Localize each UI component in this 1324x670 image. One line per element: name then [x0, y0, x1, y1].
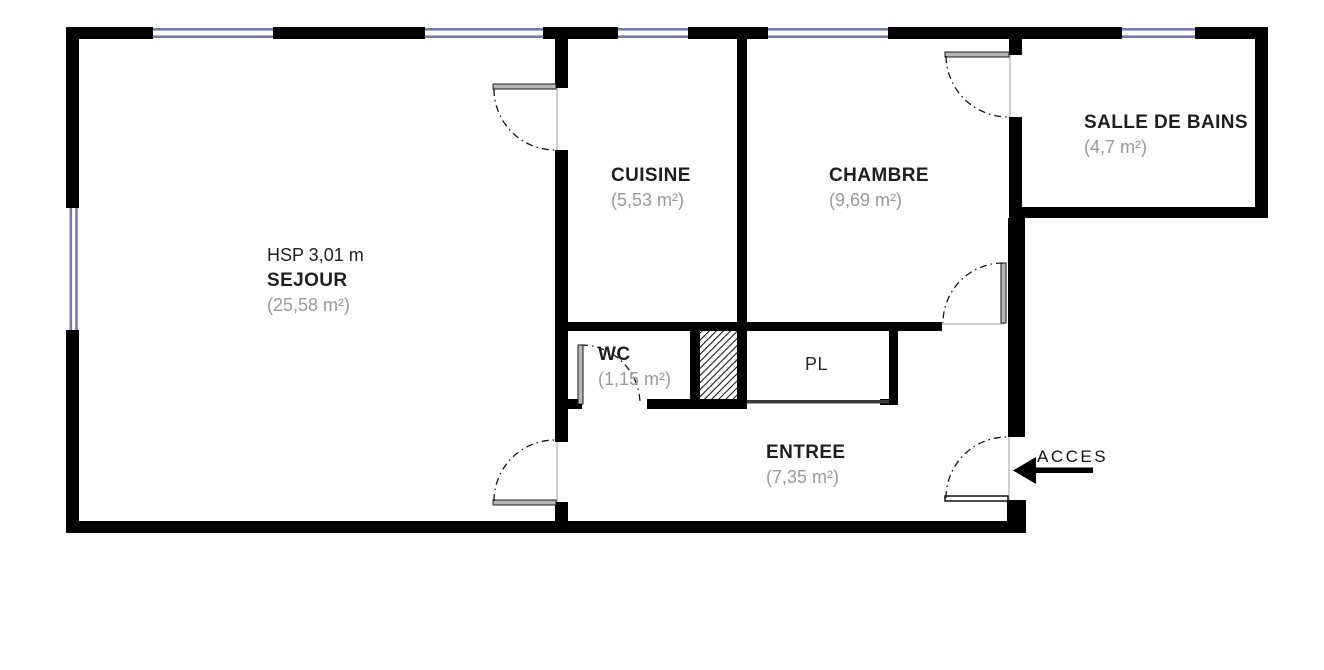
room-area: (7,35 m²) [766, 465, 845, 490]
room-area: (25,58 m²) [267, 293, 364, 318]
room-area: (4,7 m²) [1084, 135, 1248, 160]
room-name: ENTREE [766, 440, 845, 465]
window-icon [618, 27, 688, 39]
room-label-pl: PL [805, 352, 828, 377]
access-label: ACCES [1037, 444, 1108, 469]
room-label-chambre: CHAMBRE (9,69 m²) [829, 163, 929, 213]
door-entrance [945, 437, 1008, 501]
floor-plan-drawing [0, 0, 1324, 670]
window-icon [768, 27, 888, 39]
room-name: CUISINE [611, 163, 691, 188]
window-icon [1122, 27, 1195, 39]
door-chambre [943, 263, 1006, 323]
room-label-entree: ENTREE (7,35 m²) [766, 440, 845, 490]
room-area: (5,53 m²) [611, 188, 691, 213]
closet-front-line [747, 400, 889, 404]
room-area: (9,69 m²) [829, 188, 929, 213]
room-label-salle-de-bains: SALLE DE BAINS (4,7 m²) [1084, 110, 1248, 160]
room-name: SEJOUR [267, 268, 364, 293]
room-name: SALLE DE BAINS [1084, 110, 1248, 135]
room-area: (1,15 m²) [598, 367, 671, 392]
shaft-hatch [700, 331, 737, 399]
room-name: WC [598, 342, 671, 367]
window-icon [425, 27, 543, 39]
window-icon [66, 208, 79, 330]
room-label-wc: WC (1,15 m²) [598, 342, 671, 392]
door-salle-de-bains [945, 52, 1009, 117]
floor-plan: HSP 3,01 m SEJOUR (25,58 m²) CUISINE (5,… [0, 0, 1324, 670]
room-label-sejour: HSP 3,01 m SEJOUR (25,58 m²) [267, 243, 364, 318]
room-label-cuisine: CUISINE (5,53 m²) [611, 163, 691, 213]
door-thresholds [556, 55, 1011, 502]
door-cuisine [493, 84, 556, 150]
room-name: CHAMBRE [829, 163, 929, 188]
ceiling-height-note: HSP 3,01 m [267, 243, 364, 268]
interior-walls [555, 39, 942, 522]
window-icon [153, 27, 273, 39]
door-sejour-entree [493, 440, 556, 505]
room-name: PL [805, 352, 828, 377]
